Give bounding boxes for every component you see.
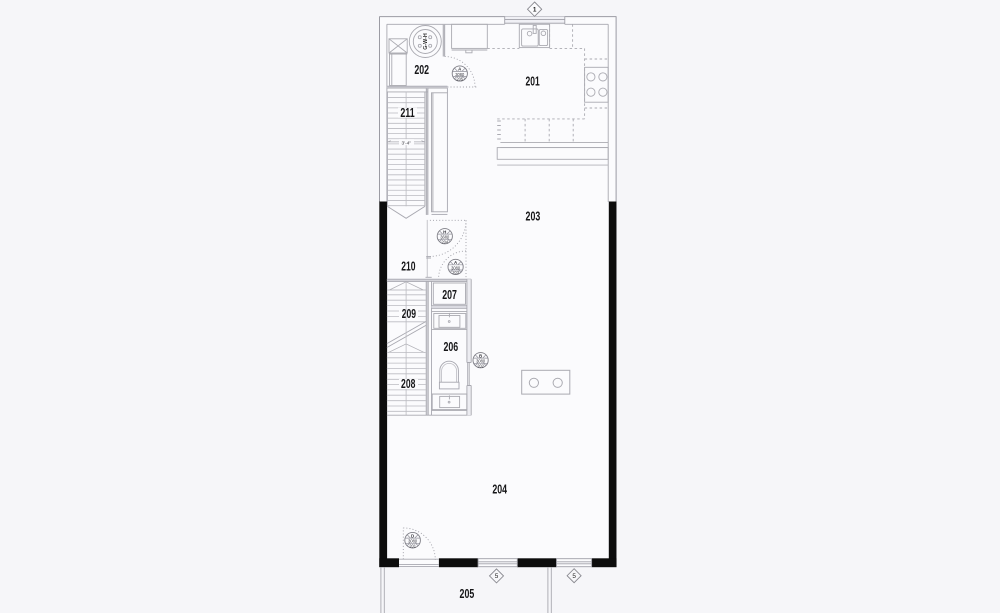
svg-text:206: 206	[443, 340, 458, 354]
svg-text:204: 204	[441, 239, 448, 244]
svg-text:3'-4": 3'-4"	[402, 141, 412, 147]
svg-text:G-W-H: G-W-H	[423, 33, 429, 50]
svg-text:5: 5	[572, 573, 576, 580]
svg-text:202: 202	[477, 363, 484, 368]
svg-text:205: 205	[460, 587, 475, 601]
svg-text:201: 201	[409, 543, 416, 548]
svg-text:205: 205	[456, 77, 463, 82]
svg-text:202: 202	[414, 63, 429, 77]
svg-text:204: 204	[492, 482, 507, 496]
svg-text:201: 201	[526, 74, 540, 88]
svg-text:211: 211	[400, 106, 414, 120]
svg-text:203: 203	[452, 270, 459, 275]
svg-text:208: 208	[401, 377, 415, 391]
svg-text:1: 1	[533, 7, 537, 14]
svg-text:209: 209	[402, 307, 416, 321]
svg-text:5: 5	[495, 573, 499, 580]
svg-text:203: 203	[526, 210, 541, 224]
svg-text:207: 207	[442, 288, 457, 302]
svg-text:210: 210	[401, 259, 415, 273]
